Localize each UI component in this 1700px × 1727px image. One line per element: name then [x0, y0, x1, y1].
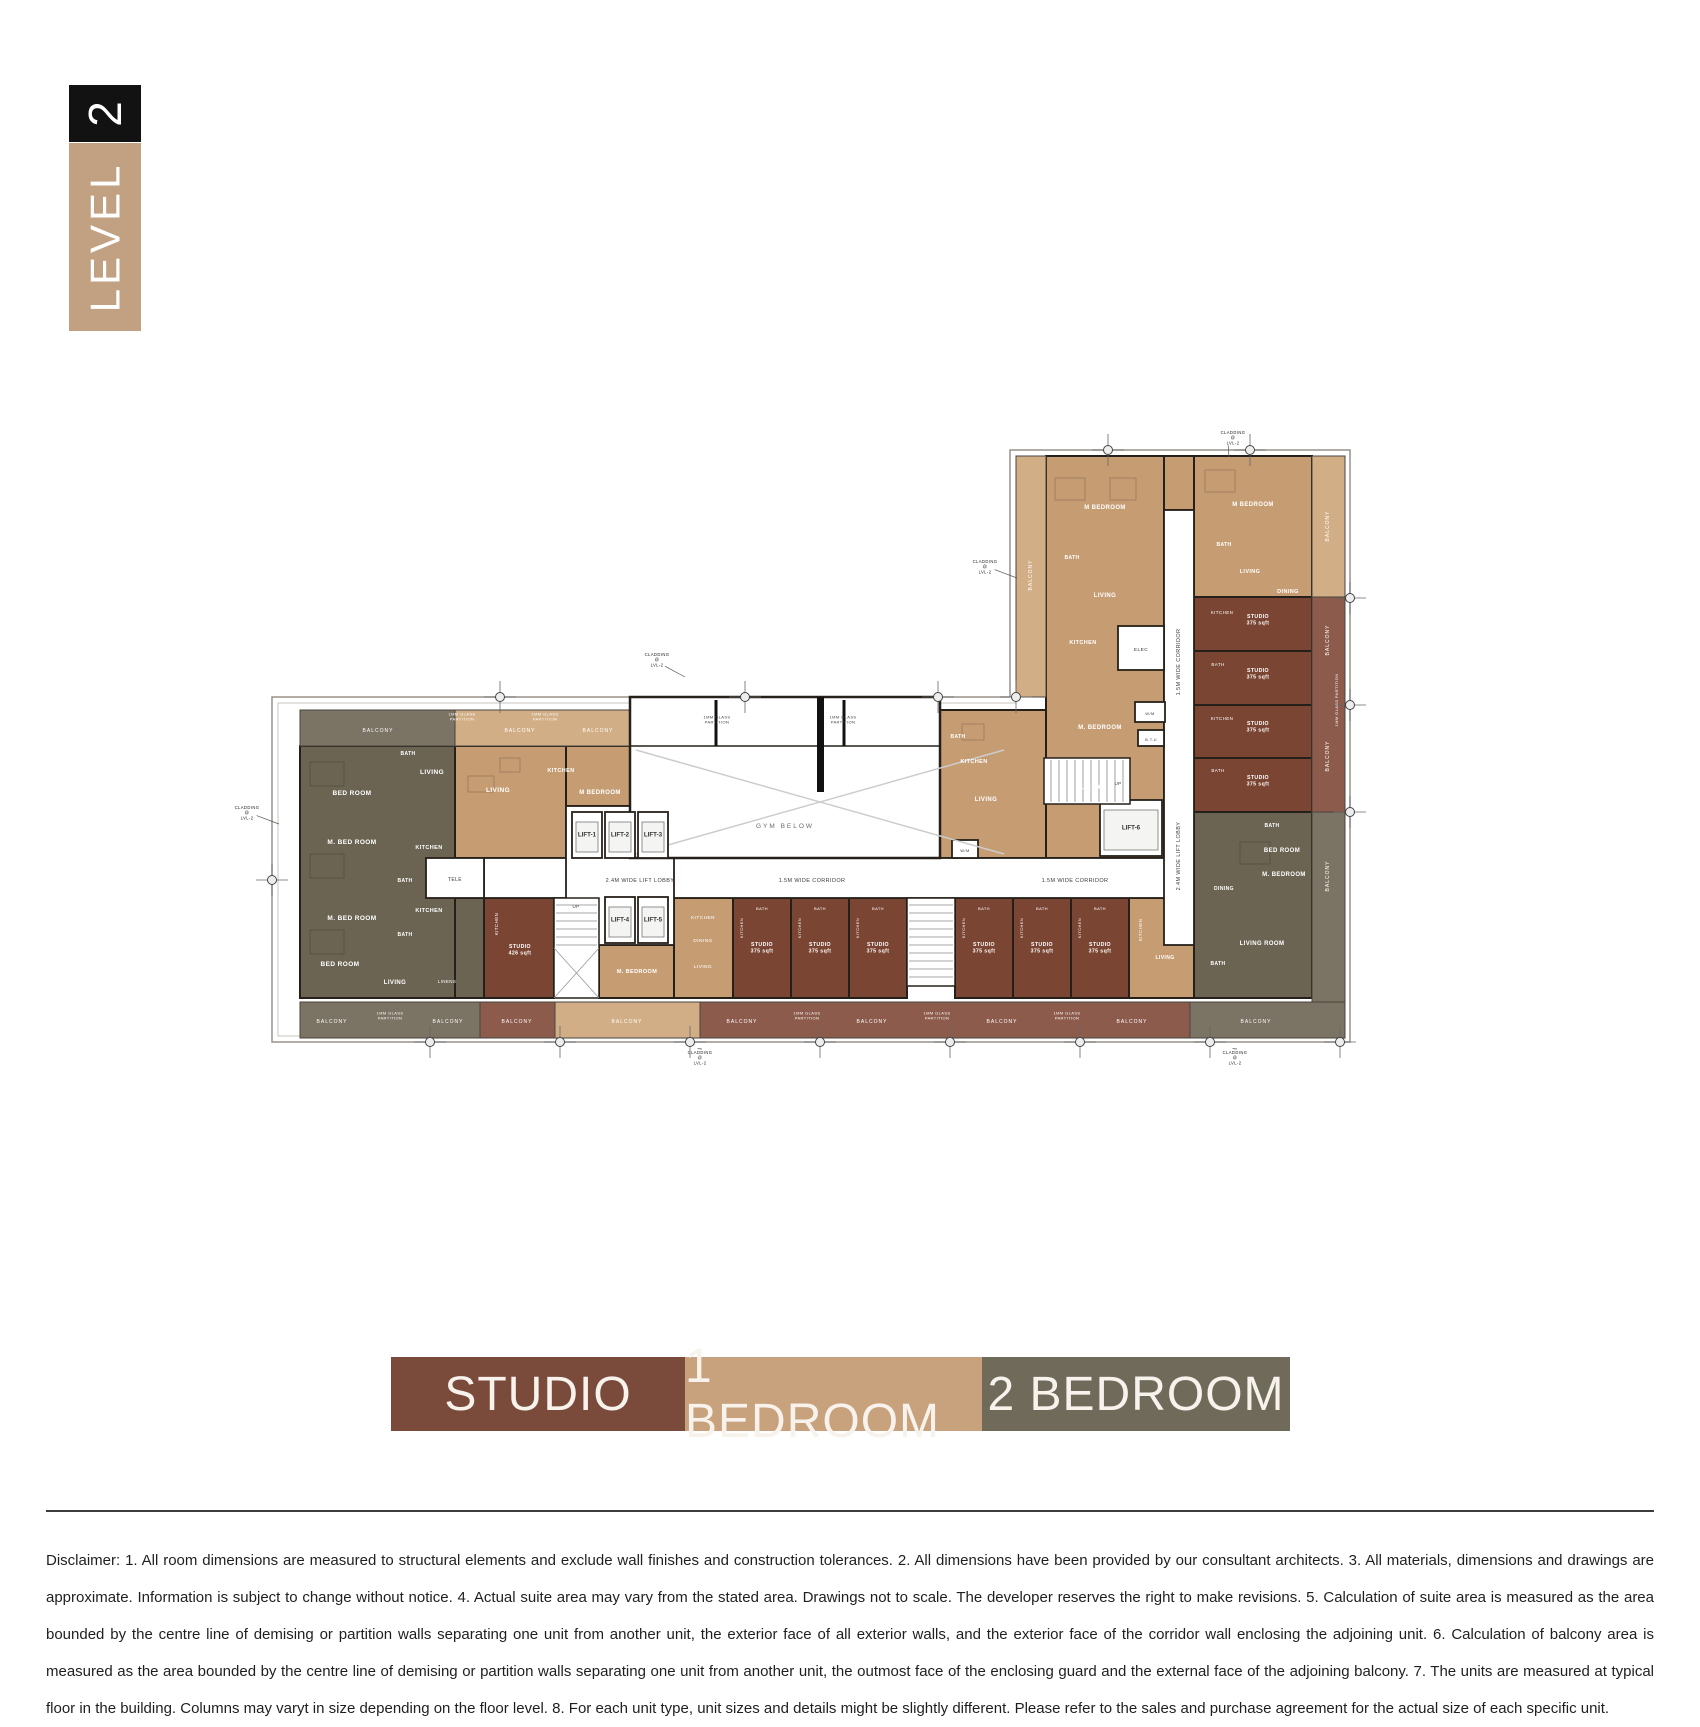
plan-label: BALCONY	[363, 728, 394, 734]
plan-label: 1.5M WIDE CORRIDOR	[1042, 878, 1109, 884]
plan-label: BALCONY	[505, 728, 536, 734]
lift-label: LIFT-4	[611, 917, 630, 924]
plan-label: W/M	[1145, 711, 1154, 716]
plan-label: LIVING	[1081, 785, 1103, 791]
plan-label: BATH	[872, 906, 884, 911]
plan-label: KITCHEN	[415, 908, 442, 914]
plan-label: BED ROOM	[333, 790, 372, 797]
plan-label: STUDIO375 sqft	[1247, 614, 1270, 627]
plan-label: LIVING ROOM	[1240, 941, 1285, 947]
cladding-note: CLADDING@LVL-2	[973, 558, 998, 574]
lift-label: LIFT-2	[611, 832, 630, 839]
plan-label: KITCHEN	[691, 915, 715, 921]
plan-label: UP	[1114, 781, 1121, 786]
plan-label: BALCONY	[727, 1019, 758, 1025]
plan-label: 1MM GLASS PARTITION	[1334, 673, 1339, 726]
plan-label: STUDIO375 sqft	[867, 942, 890, 955]
cladding-note: CLADDING@LVL-2	[645, 651, 670, 667]
plan-label: BALCONY	[1325, 625, 1331, 656]
plan-label: DINING	[693, 938, 712, 944]
plan-label: M BEDROOM	[579, 790, 621, 796]
plan-label: LIVING	[486, 787, 510, 794]
plan-label: BALCONY	[1325, 511, 1331, 542]
plan-label: STUDIO375 sqft	[809, 942, 832, 955]
plan-label: M BEDROOM	[1084, 505, 1126, 511]
plan-label: KITCHEN	[547, 768, 574, 774]
plan-label: BED ROOM	[1264, 848, 1300, 854]
plan-label: BATH	[397, 878, 412, 884]
plan-label: BALCONY	[987, 1019, 1018, 1025]
plan-label: 1MM GLASSPARTITION	[532, 711, 559, 721]
plan-label: LIVING	[420, 769, 444, 776]
plan-label: BATH	[950, 734, 965, 740]
plan-label: BALCONY	[502, 1019, 533, 1025]
cladding-note: CLADDING@LVL-2	[235, 804, 260, 820]
plan-label: M. BED ROOM	[327, 915, 376, 922]
disclaimer-text: Disclaimer: 1. All room dimensions are m…	[46, 1542, 1654, 1727]
plan-label: BALCONY	[612, 1019, 643, 1025]
divider-rule	[46, 1510, 1654, 1512]
plan-label: BALCONY	[857, 1019, 888, 1025]
legend-studio: STUDIO	[391, 1357, 685, 1431]
plan-label: STUDIO375 sqft	[1247, 668, 1270, 681]
plan-label: BATH	[1094, 906, 1106, 911]
plan-label: GYM BELOW	[756, 823, 814, 830]
cladding-note: CLADDING@LVL-2	[1223, 1049, 1248, 1065]
legend-1-bedroom: 1 BEDROOM	[685, 1357, 982, 1431]
stair-shaft	[907, 898, 955, 986]
unit-rect	[674, 898, 733, 998]
plan-label: ELEC	[1134, 647, 1148, 653]
plan-label: M. BEDROOM	[1078, 725, 1122, 731]
plan-label: BALCONY	[1117, 1019, 1148, 1025]
plan-label: STUDIO375 sqft	[973, 942, 996, 955]
plan-label: KITCHEN	[855, 918, 860, 938]
plan-label: M BEDROOM	[1232, 502, 1274, 508]
plan-label: KITCHEN	[494, 913, 499, 936]
plan-label: DINING	[1277, 589, 1299, 595]
plan-label: BALCONY	[433, 1019, 464, 1025]
plan-label: LIVING	[1094, 593, 1116, 599]
plan-label: BATH	[397, 932, 412, 938]
plan-label: BATH	[1036, 906, 1048, 911]
grid-marker	[484, 681, 516, 713]
plan-label: KITCHEN	[1069, 640, 1096, 646]
plan-label: BALCONY	[317, 1019, 348, 1025]
plan-label: STUDIO375 sqft	[751, 942, 774, 955]
legend-2-bedroom: 2 BEDROOM	[982, 1357, 1290, 1431]
plan-label: M. BEDROOM	[1262, 872, 1306, 878]
plan-label: 1MM GLASSPARTITION	[924, 1010, 951, 1020]
plan-label: 1.5M WIDE CORRIDOR	[779, 878, 846, 884]
plan-label: KITCHEN	[415, 845, 442, 851]
plan-label: 2.4M WIDE LIFT LOBBY	[606, 878, 675, 884]
unit-rect	[455, 746, 566, 858]
gym-pillar	[817, 697, 824, 792]
plan-label: LIVING	[1240, 569, 1261, 575]
plan-label: W/M	[960, 848, 969, 853]
plan-label: 1MM GLASSPARTITION	[830, 714, 857, 724]
plan-label: BALCONY	[1241, 1019, 1272, 1025]
plan-label: KITCHEN	[960, 759, 987, 765]
plan-label: BATH	[1211, 768, 1224, 773]
plan-label: STUDIO375 sqft	[1089, 942, 1112, 955]
unit-rect	[1164, 456, 1194, 510]
cladding-note: CLADDING@LVL-2	[1221, 429, 1246, 445]
cladding-leader	[257, 816, 279, 824]
plan-label: BALCONY	[1325, 861, 1331, 892]
plan-label: KITCHEN	[1138, 919, 1143, 942]
legend-studio-label: STUDIO	[444, 1367, 631, 1422]
lift-label: LIFT-5	[644, 917, 663, 924]
plan-label: BATH	[756, 906, 768, 911]
unit-type-legend: STUDIO 1 BEDROOM 2 BEDROOM	[391, 1357, 1290, 1431]
legend-1-bedroom-label: 1 BEDROOM	[685, 1339, 982, 1449]
unit-rect	[940, 710, 1046, 858]
plan-label: B.T.U	[1145, 737, 1157, 742]
plan-label: 2.4M WIDE LIFT LOBBY	[1176, 822, 1182, 891]
plan-label: STUDIO375 sqft	[1031, 942, 1054, 955]
plan-label: BATH	[1211, 662, 1224, 667]
plan-label: BATH	[1064, 555, 1079, 561]
plan-label: KITCHEN	[1077, 918, 1082, 938]
plan-label: 1MM GLASSPARTITION	[1054, 1010, 1081, 1020]
plan-label: BATH	[1264, 823, 1279, 829]
unit-rect	[455, 898, 484, 998]
plan-label: KITCHEN	[1211, 716, 1234, 721]
plan-label: KITCHEN	[961, 918, 966, 938]
plan-label: BALCONY	[1325, 741, 1331, 772]
unit-rect	[1194, 812, 1312, 998]
gym-void	[630, 697, 940, 858]
unit-rect	[566, 746, 630, 806]
plan-label: BATH	[978, 906, 990, 911]
plan-label: KITCHEN	[1019, 918, 1024, 938]
cladding-leader	[665, 666, 685, 677]
plan-label: TELE	[448, 877, 462, 883]
lift-label: LIFT-6	[1122, 825, 1141, 832]
plan-label: LIVING	[1155, 955, 1174, 961]
plan-label: STUDIO375 sqft	[1247, 721, 1270, 734]
plan-label: KITCHEN	[1211, 610, 1234, 615]
plan-label: LIVING	[694, 964, 712, 970]
plan-label: 1.5M WIDE CORRIDOR	[1176, 629, 1182, 696]
plan-label: BATH	[814, 906, 826, 911]
cladding-note: CLADDING@LVL-2	[688, 1049, 713, 1065]
lift-label: LIFT-1	[578, 832, 597, 839]
plan-label: LIVING	[975, 797, 997, 803]
plan-label: KITCHEN	[739, 918, 744, 938]
plan-label: 1MM GLASSPARTITION	[449, 711, 476, 721]
plan-label: BATH	[400, 751, 415, 757]
plan-label: M. BED ROOM	[327, 839, 376, 846]
plan-label: KITCHEN	[797, 918, 802, 938]
plan-label: 1MM GLASSPARTITION	[377, 1010, 404, 1020]
unit-rect	[1194, 456, 1312, 597]
grid-marker	[256, 864, 288, 896]
plan-label: BALCONY	[583, 728, 614, 734]
plan-label: 1MM GLASSPARTITION	[704, 714, 731, 724]
plan-label: UP	[572, 904, 579, 909]
balcony-rect	[1312, 812, 1345, 1002]
plan-label: BALCONY	[1028, 560, 1034, 591]
plan-label: DINING	[1214, 886, 1234, 892]
plan-label: LINENS	[438, 979, 457, 984]
plan-label: BATH	[1216, 542, 1231, 548]
plan-label: LIVING	[384, 980, 406, 986]
plan-label: BED ROOM	[321, 961, 360, 968]
legend-2-bedroom-label: 2 BEDROOM	[987, 1367, 1284, 1422]
plan-label: STUDIO375 sqft	[1247, 775, 1270, 788]
plan-label: STUDIO426 sqft	[509, 944, 532, 957]
cladding-leader	[995, 570, 1017, 578]
plan-label: BATH	[1210, 961, 1225, 967]
plan-label: 1MM GLASSPARTITION	[794, 1010, 821, 1020]
lift-label: LIFT-3	[644, 832, 663, 839]
plan-label: M. BEDROOM	[617, 969, 657, 975]
